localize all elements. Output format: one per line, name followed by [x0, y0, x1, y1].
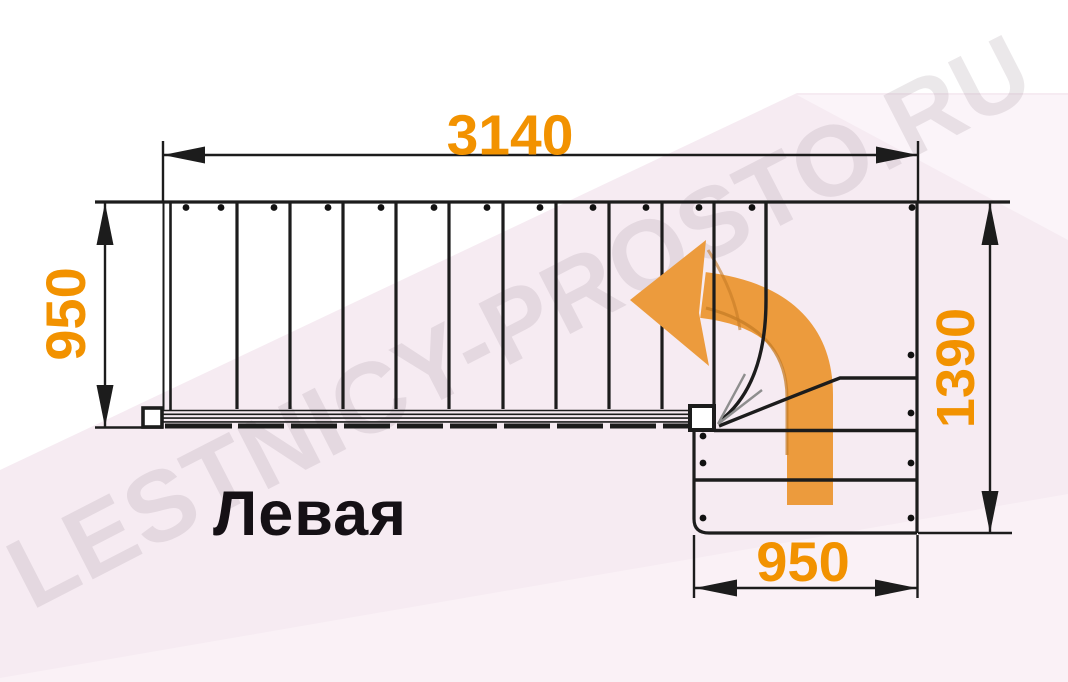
dim-label-total-length: 3140	[447, 108, 574, 165]
dim-flight-width	[95, 203, 163, 428]
direction-arrow-icon	[630, 240, 810, 505]
dim-label-turn-depth: 1390	[929, 308, 983, 428]
dim-label-lower-flight-width: 950	[756, 534, 849, 590]
variant-label: Левая	[213, 478, 407, 550]
dim-label-flight-width: 950	[38, 267, 94, 360]
staircase-drawing-canvas	[0, 0, 1068, 682]
screw-dots-top	[183, 204, 916, 211]
newel-post-left	[143, 408, 162, 427]
staircase-plan-page: { "diagram": { "title_label": "Левая", "…	[0, 0, 1068, 682]
handrail	[143, 408, 708, 427]
newel-post-corner	[690, 406, 714, 430]
